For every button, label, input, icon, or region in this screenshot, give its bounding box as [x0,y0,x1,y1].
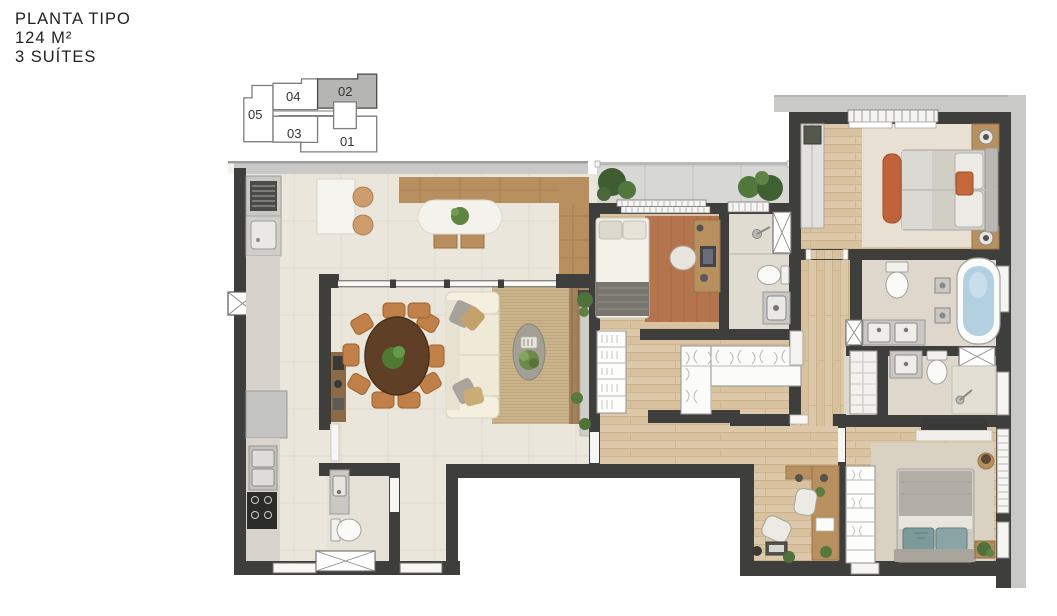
svg-text:04: 04 [286,89,300,104]
svg-text:03: 03 [287,126,301,141]
svg-text:02: 02 [338,84,352,99]
svg-text:01: 01 [340,134,354,149]
svg-text:05: 05 [248,107,262,122]
